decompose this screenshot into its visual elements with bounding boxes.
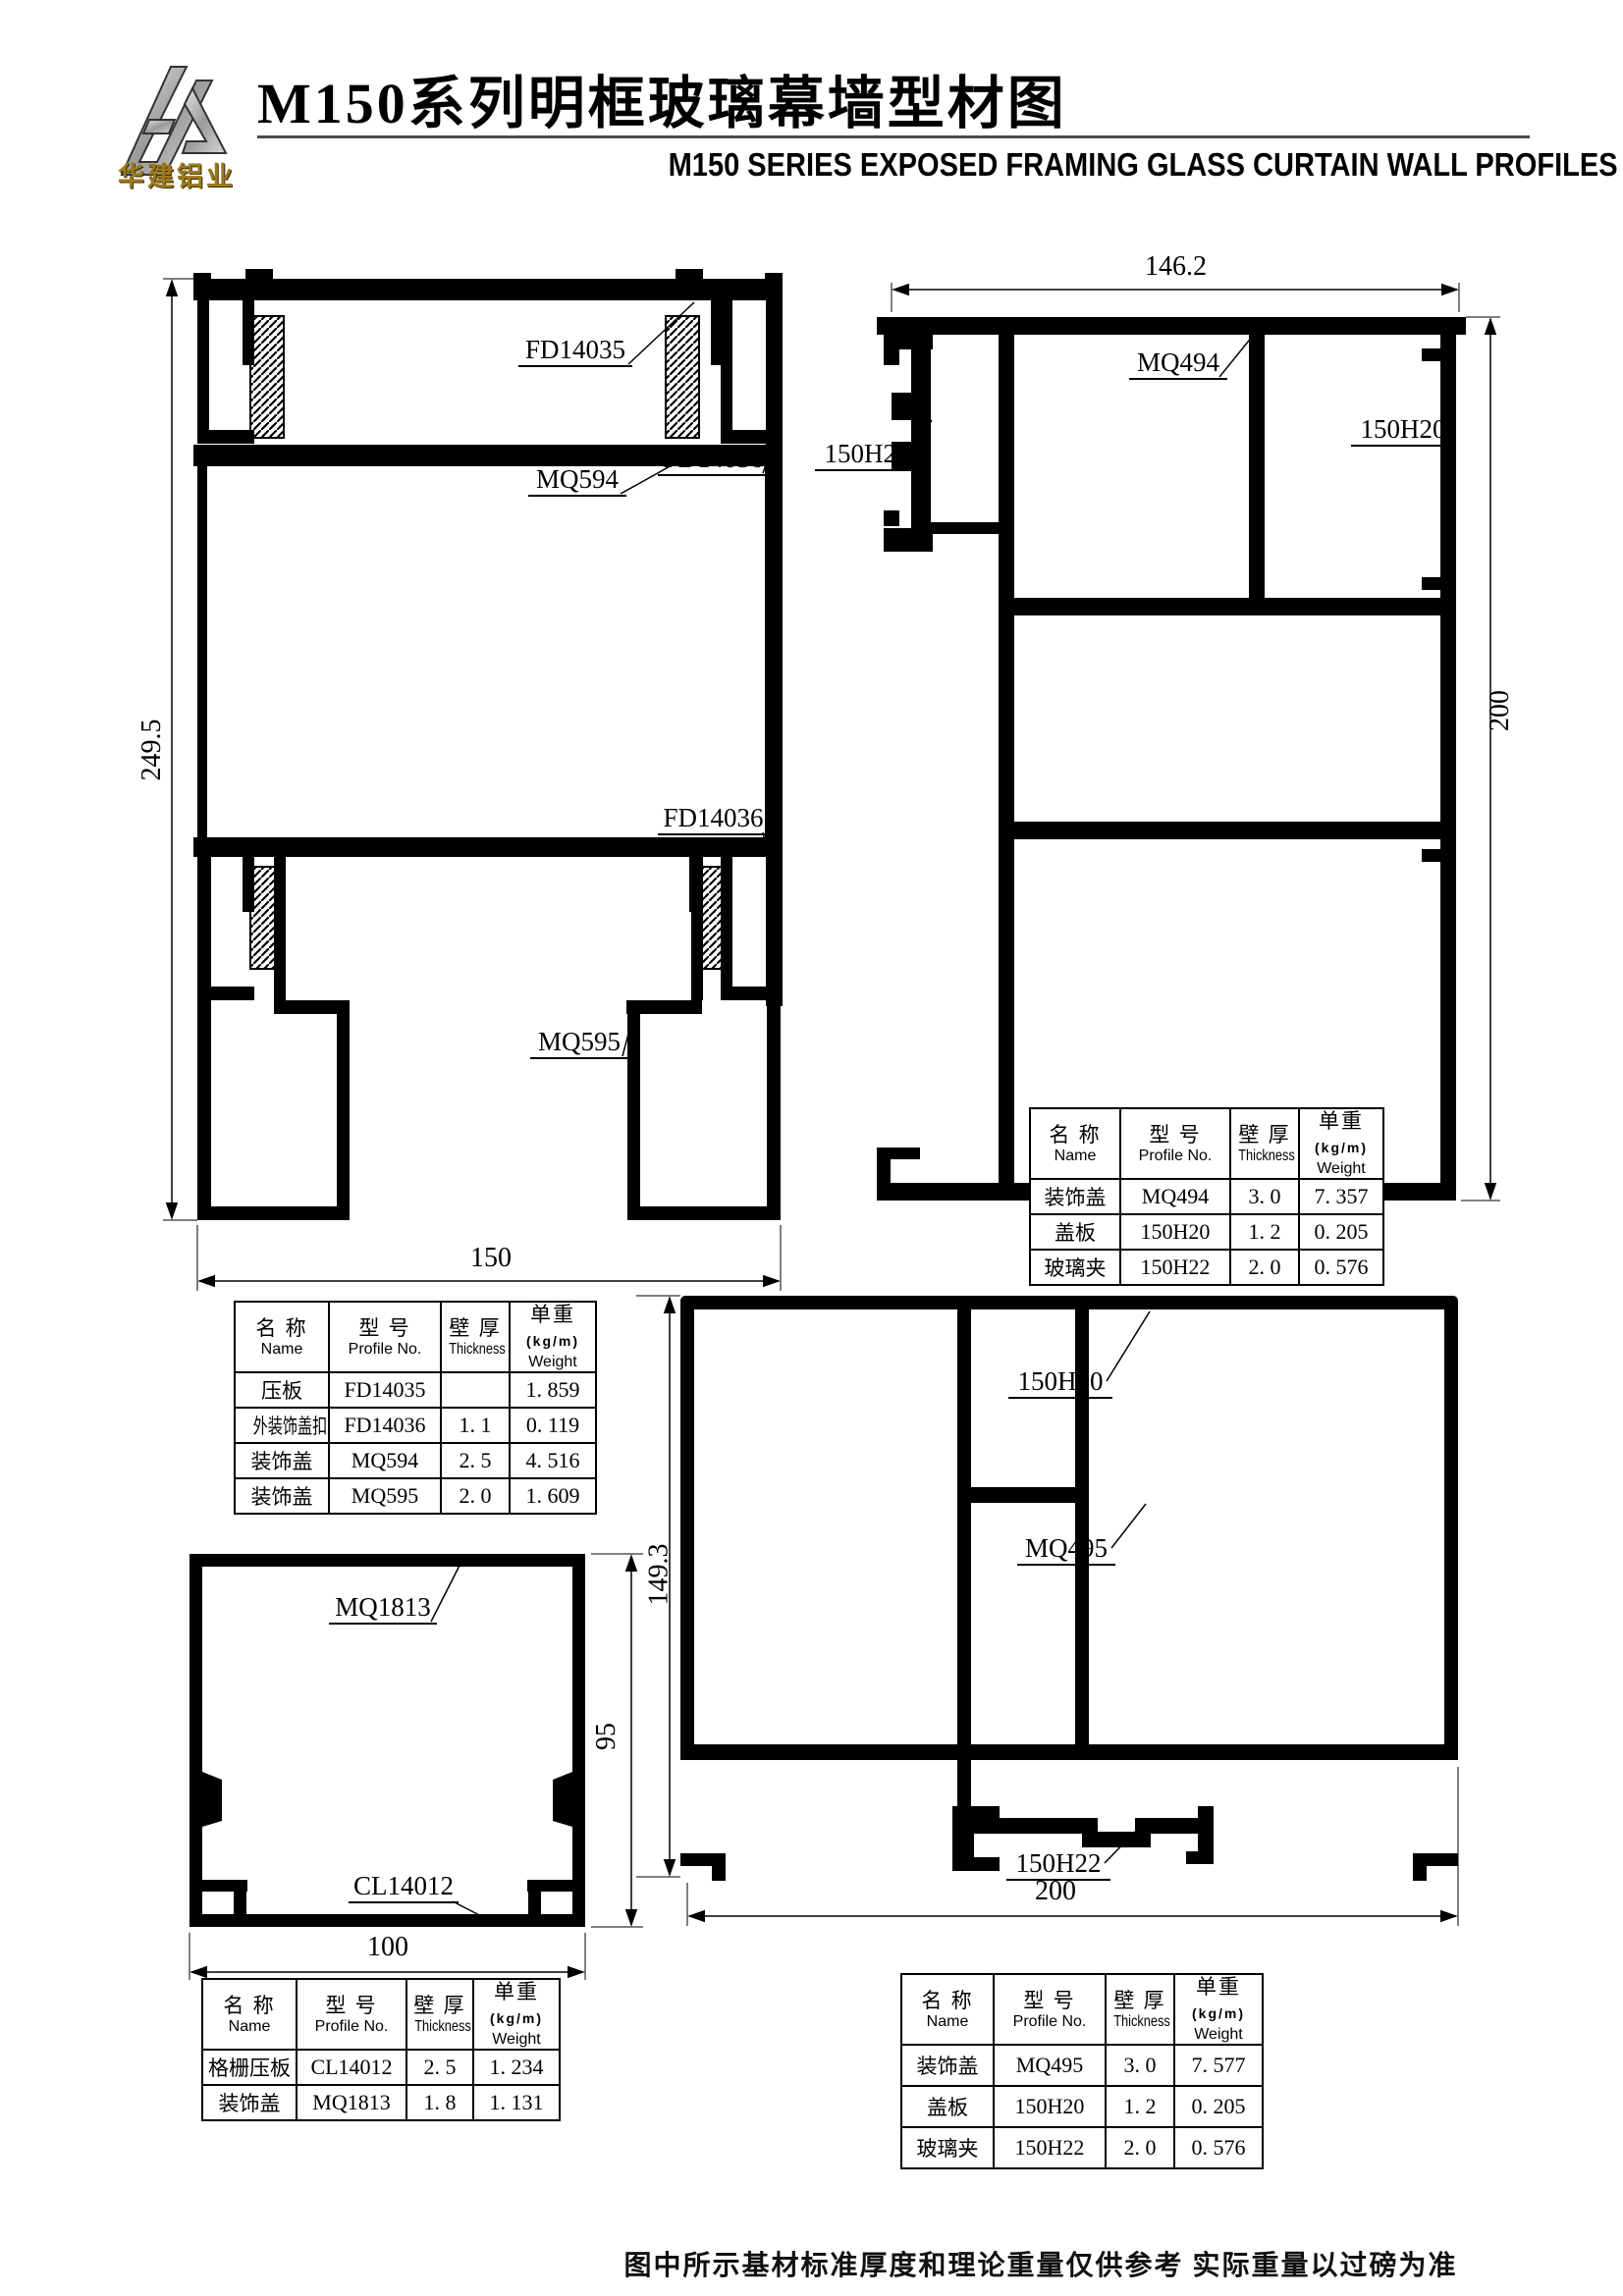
col-header-weight-cn: 单重(kg/m) xyxy=(474,1980,559,2031)
col-header-thickness-en: Thickness xyxy=(414,2018,471,2036)
col-header-model-cn: 型 号 xyxy=(1121,1123,1229,1148)
drawing-box-section: MQ1813 CL14012 95 100 xyxy=(128,1536,677,1993)
col-header-weight-en: Weight xyxy=(474,2031,559,2049)
part-label-mq494: MQ494 xyxy=(1129,347,1227,380)
col-header-model-cn: 型 号 xyxy=(330,1316,440,1341)
title-divider xyxy=(257,135,1530,138)
table-row: 压板FD140351. 859 xyxy=(235,1372,596,1408)
table-row: 盖板150H201. 20. 205 xyxy=(901,2086,1263,2127)
company-name: 华建铝业 xyxy=(98,155,255,193)
col-header-thickness-en: Thickness xyxy=(1113,2013,1170,2031)
part-label-cl14012: CL14012 xyxy=(349,1871,459,1903)
col-header-name-en: Name xyxy=(236,1341,328,1359)
drawing-sheet: 华建铝业 M150系列明框玻璃幕墙型材图 M150 SERIES EXPOSED… xyxy=(0,0,1623,2296)
dim-height-249-5: 249.5 xyxy=(138,706,166,794)
col-header-model-cn: 型 号 xyxy=(298,1994,406,2018)
col-header-name-cn: 名 称 xyxy=(1031,1123,1119,1148)
dim-width-150: 150 xyxy=(452,1245,530,1272)
dim-height-200: 200 xyxy=(1487,676,1514,745)
col-header-model-en: Profile No. xyxy=(298,2018,406,2036)
col-header-thickness-en: Thickness xyxy=(449,1341,506,1359)
part-label-fd14036-lower: FD14036 xyxy=(658,803,769,835)
sheet-title-chinese: M150系列明框玻璃幕墙型材图 xyxy=(257,57,1067,139)
spec-table-mullion: 名 称Name 型 号Profile No. 壁 厚Thickness 单重(k… xyxy=(234,1301,597,1515)
col-header-thickness-cn: 壁 厚 xyxy=(1231,1123,1298,1148)
dim-width-100: 100 xyxy=(349,1934,427,1961)
col-header-weight-cn: 单重(kg/m) xyxy=(1300,1109,1382,1160)
col-header-model-en: Profile No. xyxy=(995,2013,1105,2031)
part-label-fd14035: FD14035 xyxy=(518,335,632,367)
table-row: 装饰盖MQ4953. 07. 577 xyxy=(901,2045,1263,2086)
col-header-thickness-en: Thickness xyxy=(1238,1148,1295,1165)
col-header-name-cn: 名 称 xyxy=(203,1994,296,2018)
col-header-name-cn: 名 称 xyxy=(902,1989,993,2013)
col-header-name-en: Name xyxy=(203,2018,296,2036)
table-row: 装饰盖MQ5942. 54. 516 xyxy=(235,1443,596,1478)
drawing-mullion-section: FD14035 MQ594 FD14036 FD14036 MQ595 249.… xyxy=(128,265,820,1301)
spec-table-sill: 名 称Name 型 号Profile No. 壁 厚Thickness 单重(k… xyxy=(900,1973,1264,2169)
col-header-weight-en: Weight xyxy=(511,1354,595,1371)
mullion-linework xyxy=(128,265,820,1301)
sheet-title-english: M150 SERIES EXPOSED FRAMING GLASS CURTAI… xyxy=(669,146,1537,184)
col-header-model-en: Profile No. xyxy=(330,1341,440,1359)
col-header-weight-en: Weight xyxy=(1300,1160,1382,1178)
spec-table-box: 名 称Name 型 号Profile No. 壁 厚Thickness 单重(k… xyxy=(201,1978,561,2121)
part-label-mq594: MQ594 xyxy=(528,464,626,497)
part-label-mq1813: MQ1813 xyxy=(329,1592,437,1625)
col-header-model-cn: 型 号 xyxy=(995,1989,1105,2013)
spec-table-corner: 名 称Name 型 号Profile No. 壁 厚Thickness 单重(k… xyxy=(1029,1107,1384,1286)
part-label-150h22: 150H22 xyxy=(815,439,919,471)
col-header-name-en: Name xyxy=(902,2013,993,2031)
col-header-thickness-cn: 壁 厚 xyxy=(442,1316,509,1341)
disclaimer-note: 图中所示基材标准厚度和理论重量仅供参考 实际重量以过磅为准 xyxy=(550,2244,1532,2283)
table-row: 玻璃夹150H222. 00. 576 xyxy=(1030,1250,1383,1285)
col-header-thickness-cn: 壁 厚 xyxy=(1107,1989,1173,2013)
col-header-name-cn: 名 称 xyxy=(236,1316,328,1341)
col-header-weight-cn: 单重(kg/m) xyxy=(1175,1975,1262,2026)
table-row: 盖板150H201. 20. 205 xyxy=(1030,1214,1383,1250)
table-row: 装饰盖MQ4943. 07. 357 xyxy=(1030,1179,1383,1214)
part-label-fd14036-upper: FD14036 xyxy=(658,444,769,476)
table-row: 格栅压板CL140122. 51. 234 xyxy=(202,2050,560,2085)
table-row: 装饰盖MQ18131. 81. 131 xyxy=(202,2085,560,2120)
drawing-sill-section: 150H20 MQ495 150H22 149.3 200 xyxy=(628,1276,1522,1944)
part-label-150h20-sill: 150H20 xyxy=(1008,1366,1112,1399)
dim-width-200: 200 xyxy=(1016,1878,1095,1905)
table-row: 玻璃夹150H222. 00. 576 xyxy=(901,2127,1263,2168)
part-label-mq495: MQ495 xyxy=(1017,1533,1115,1566)
dim-width-146-2: 146.2 xyxy=(1129,253,1222,281)
col-header-weight-en: Weight xyxy=(1175,2026,1262,2044)
table-row: 外装饰盖扣盖FD140361. 10. 119 xyxy=(235,1408,596,1443)
dim-height-149-3: 149.3 xyxy=(646,1528,674,1622)
col-header-model-en: Profile No. xyxy=(1121,1148,1229,1165)
col-header-name-en: Name xyxy=(1031,1148,1119,1165)
col-header-thickness-cn: 壁 厚 xyxy=(407,1994,472,2018)
part-label-mq595: MQ595 xyxy=(530,1027,628,1059)
dim-height-95: 95 xyxy=(593,1707,621,1766)
table-row: 装饰盖MQ5952. 01. 609 xyxy=(235,1478,596,1514)
col-header-weight-cn: 单重(kg/m) xyxy=(511,1303,595,1354)
part-label-150h20: 150H20 xyxy=(1351,414,1455,447)
